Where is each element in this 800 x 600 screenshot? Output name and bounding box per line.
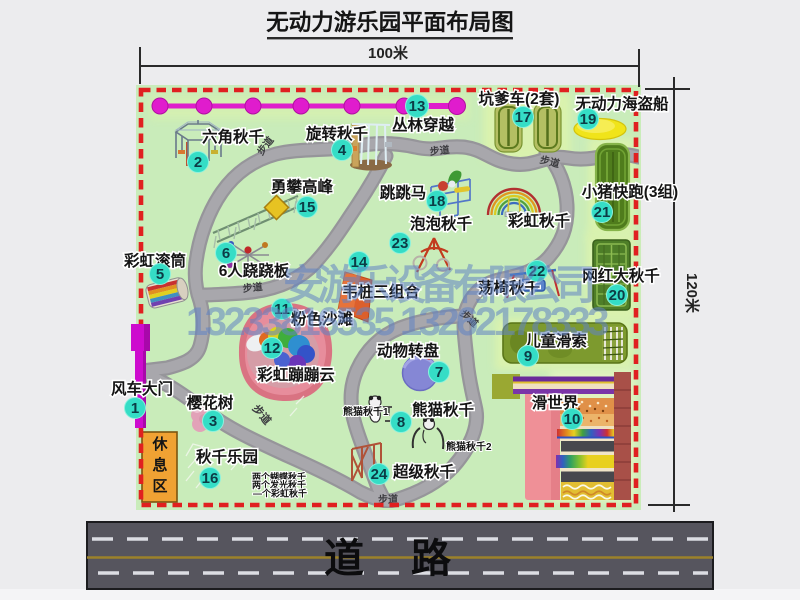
svg-text:路: 路 xyxy=(411,537,452,581)
svg-text:彩虹秋千: 彩虹秋千 xyxy=(507,211,571,230)
svg-text:13: 13 xyxy=(409,98,426,115)
svg-text:秋千乐园: 秋千乐园 xyxy=(196,447,258,466)
svg-text:18: 18 xyxy=(429,193,446,210)
svg-text:8: 8 xyxy=(397,414,405,431)
svg-text:网红大秋千: 网红大秋千 xyxy=(582,266,660,285)
svg-text:15: 15 xyxy=(299,199,316,216)
svg-text:旋转秋千: 旋转秋千 xyxy=(305,124,369,143)
svg-text:23: 23 xyxy=(392,235,409,252)
svg-text:100米: 100米 xyxy=(368,44,409,62)
svg-text:息: 息 xyxy=(152,456,167,474)
svg-text:3: 3 xyxy=(209,413,217,430)
svg-text:6: 6 xyxy=(222,245,230,262)
svg-text:熊猫秋千: 熊猫秋千 xyxy=(412,400,475,419)
svg-text:六角秋千: 六角秋千 xyxy=(202,127,265,146)
svg-text:休: 休 xyxy=(151,435,168,453)
svg-text:区: 区 xyxy=(152,478,167,495)
svg-text:6人跷跷板: 6人跷跷板 xyxy=(219,261,290,280)
svg-text:9: 9 xyxy=(524,348,532,365)
svg-text:7: 7 xyxy=(435,364,443,381)
svg-text:13233816535 13262178333: 13233816535 13262178333 xyxy=(186,300,608,344)
svg-text:24: 24 xyxy=(371,466,388,483)
svg-text:19: 19 xyxy=(580,111,597,128)
svg-text:道: 道 xyxy=(324,537,364,581)
svg-text:4: 4 xyxy=(338,142,347,159)
svg-text:坑爹车(2套): 坑爹车(2套) xyxy=(479,89,560,108)
svg-text:丛林穿越: 丛林穿越 xyxy=(392,115,455,134)
svg-text:勇攀高峰: 勇攀高峰 xyxy=(271,177,334,196)
svg-text:风车大门: 风车大门 xyxy=(111,379,173,398)
svg-text:小猪快跑(3组): 小猪快跑(3组) xyxy=(582,182,678,201)
svg-text:21: 21 xyxy=(594,204,611,221)
svg-text:2: 2 xyxy=(194,154,202,171)
svg-text:无动力游乐园平面布局图: 无动力游乐园平面布局图 xyxy=(266,9,514,35)
svg-text:20: 20 xyxy=(609,287,626,304)
svg-text:5: 5 xyxy=(156,266,164,283)
svg-text:120米: 120米 xyxy=(683,273,701,314)
svg-text:10: 10 xyxy=(564,411,581,428)
svg-text:跳跳马: 跳跳马 xyxy=(380,183,427,202)
svg-text:1: 1 xyxy=(131,400,139,417)
svg-text:樱花树: 樱花树 xyxy=(187,393,234,412)
svg-text:17: 17 xyxy=(515,109,532,126)
svg-text:16: 16 xyxy=(202,470,219,487)
svg-text:—个彩虹秋千: —个彩虹秋千 xyxy=(253,488,307,499)
svg-text:熊猫秋千1: 熊猫秋千1 xyxy=(343,405,389,418)
svg-text:熊猫秋千2: 熊猫秋千2 xyxy=(446,440,492,453)
svg-text:泡泡秋千: 泡泡秋千 xyxy=(410,214,473,233)
svg-text:彩虹蹦蹦云: 彩虹蹦蹦云 xyxy=(256,365,335,384)
svg-text:超级秋千: 超级秋千 xyxy=(392,462,456,481)
